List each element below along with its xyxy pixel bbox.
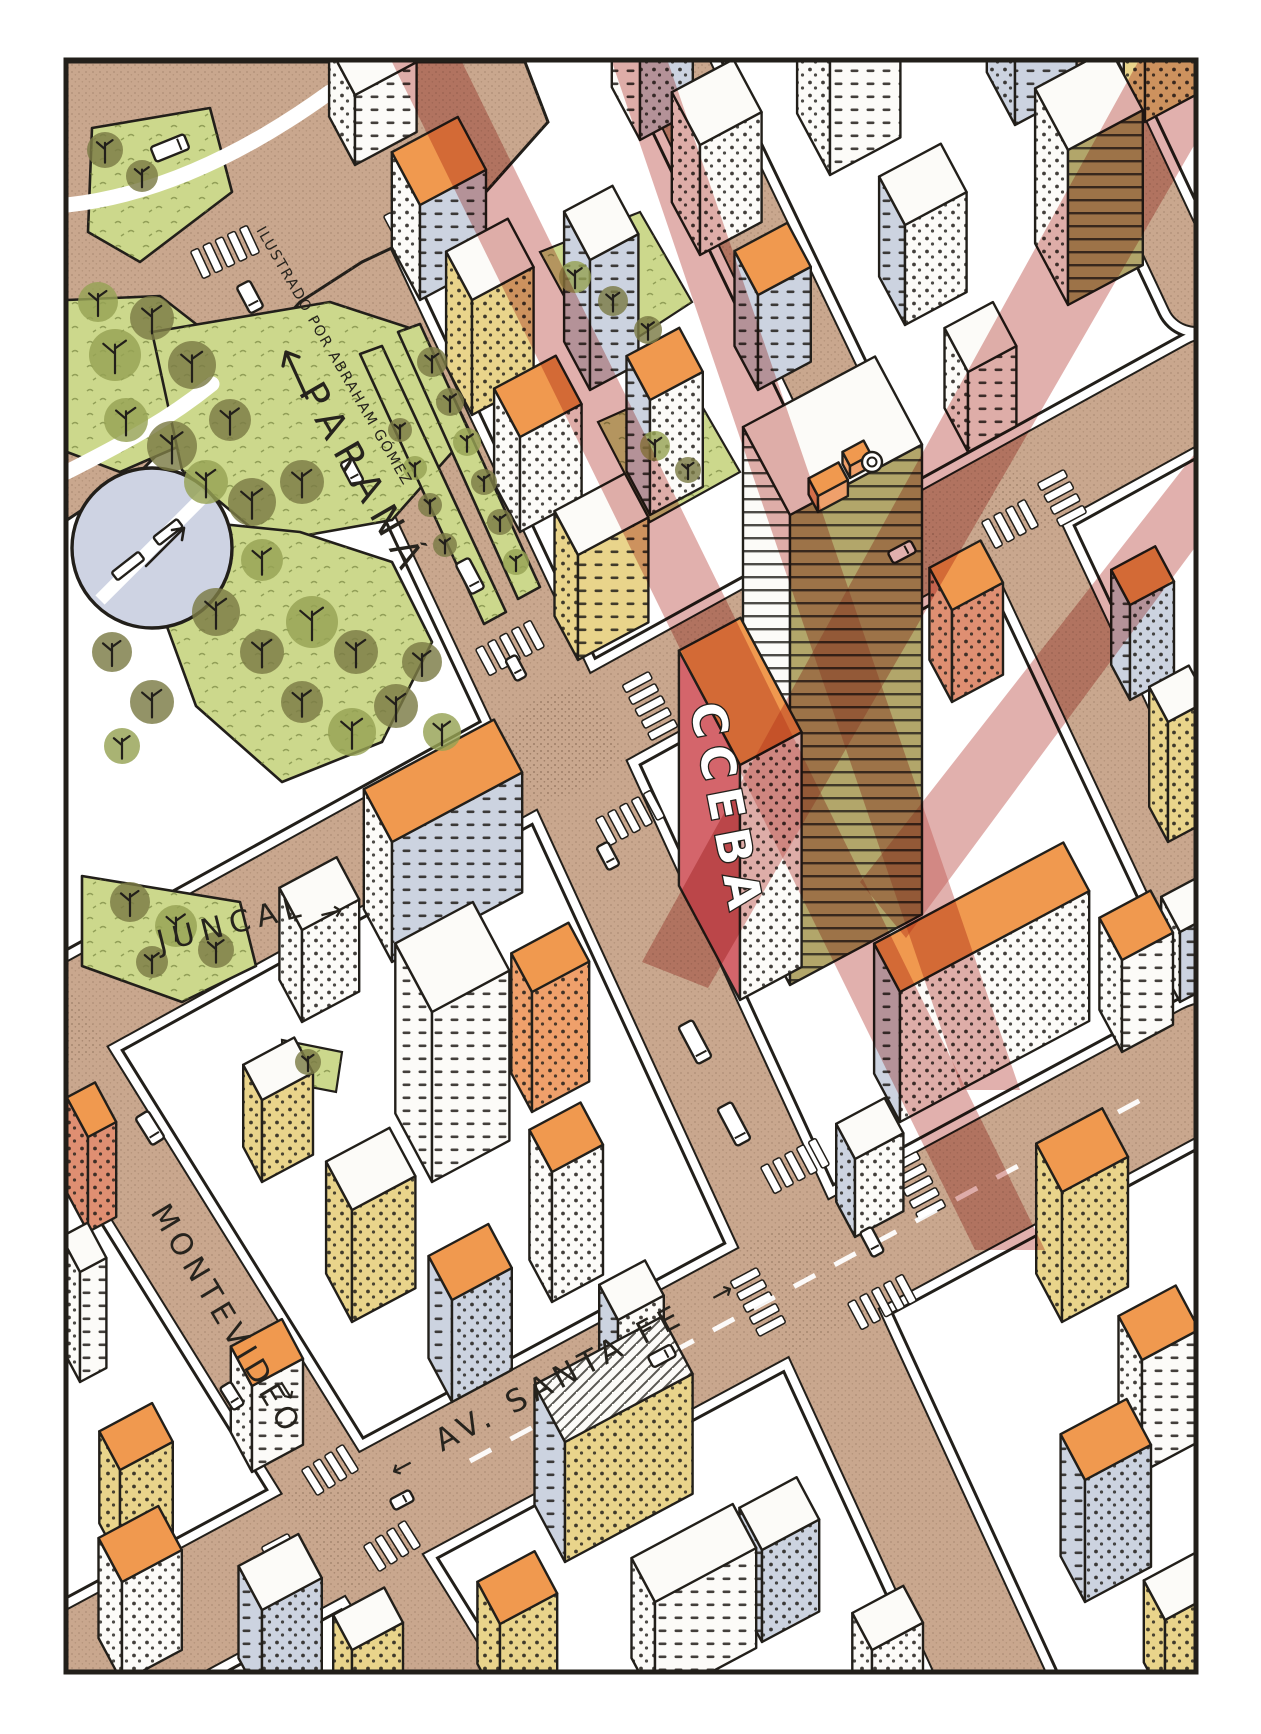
building [529,1103,603,1303]
illustrated-map-page: ILUSTRADO POR ABRAHAM GÓMEZ PARANÁ JUNCA… [0,0,1261,1734]
building [99,1506,182,1682]
building [279,857,359,1022]
building [511,923,589,1112]
building [879,144,967,325]
building [395,902,509,1182]
building [1036,1108,1128,1322]
building [1061,1399,1151,1602]
building [836,1098,903,1237]
building [326,1128,415,1322]
illustrated-city-map: ILUSTRADO POR ABRAHAM GÓMEZ PARANÁ JUNCA… [0,0,1261,1734]
building [1099,891,1173,1053]
building [429,1224,512,1402]
